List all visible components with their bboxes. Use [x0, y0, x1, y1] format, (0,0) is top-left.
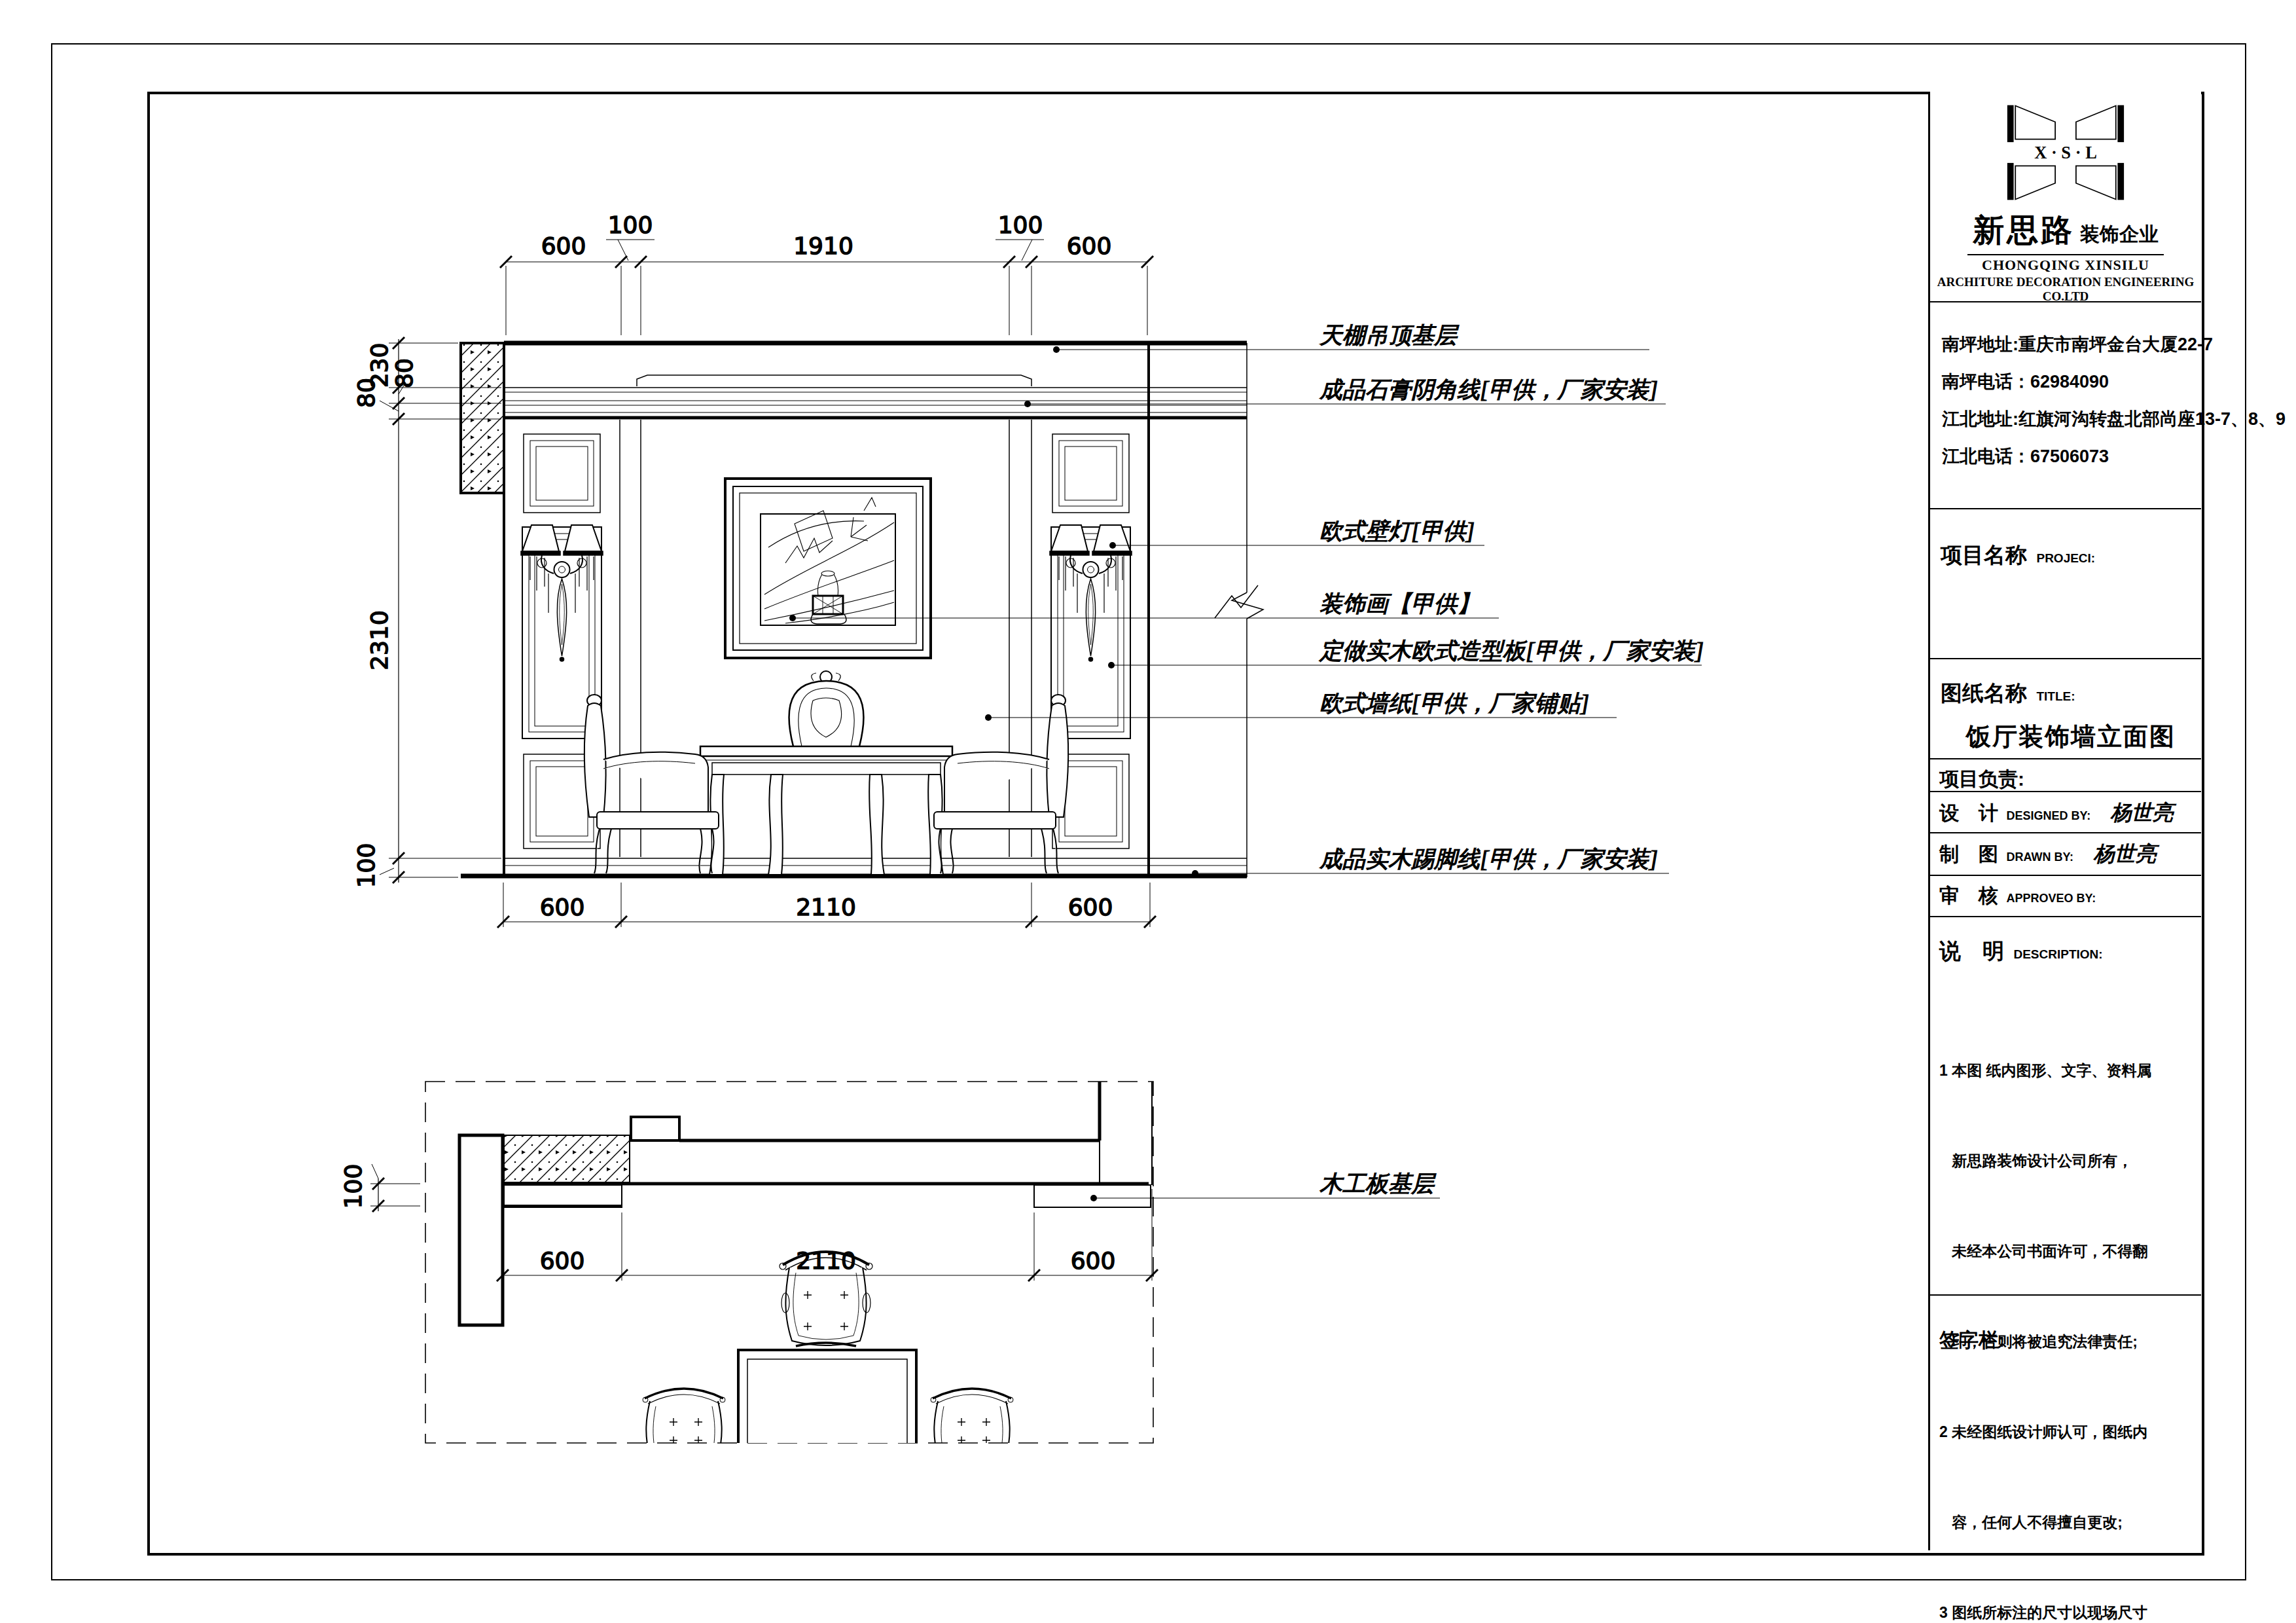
company-name: 新思路装饰企业 — [1930, 210, 2201, 251]
wall-structure — [461, 343, 1263, 877]
project-name-section: 项目名称 PROJECI: — [1930, 508, 2201, 658]
dim-label: 80 — [391, 358, 418, 388]
dim-label: 100 — [340, 1164, 367, 1209]
lead-label: 项目负责: — [1939, 768, 2024, 790]
dim-label: 2110 — [796, 894, 856, 921]
elevation-view: 600 100 1910 100 600 600 2110 600 — [353, 211, 1704, 928]
logo-initials: X · S · L — [2034, 143, 2097, 162]
annotation-wallpaper: 欧式墙纸[甲供，厂家铺贴] — [1319, 691, 1589, 716]
note-line: 1 本图 纸内图形、文字、资料属 — [1939, 1055, 2201, 1085]
audit-label-cn: 审 核 — [1939, 884, 1998, 906]
elevation-dim-bottom: 600 2110 600 — [497, 883, 1156, 928]
description-label-cn: 说 明 — [1939, 939, 2004, 963]
dim-label: 2310 — [366, 610, 393, 670]
drawing-sheet: 600 100 1910 100 600 600 2110 600 — [0, 0, 2296, 1623]
annotation-plaster-cornice: 成品石膏阴角线[甲供，厂家安装] — [1319, 377, 1658, 403]
drawing-label-cn: 图纸名称 — [1941, 681, 2027, 705]
plan-view: 600 2110 600 100 木工板基层 — [340, 1082, 1440, 1448]
dim-label: 1910 — [793, 232, 853, 259]
drawn-by-row: 制 图 DRAWN BY: 杨世亮 — [1930, 832, 2201, 875]
note-line: 新思路装饰设计公司所有， — [1939, 1146, 2201, 1176]
dim-label: 100 — [608, 211, 653, 238]
title-block: X · S · L 新思路装饰企业 CHONGQING XINSILU ARCH… — [1928, 92, 2201, 1550]
decorative-picture — [725, 479, 931, 658]
drawing-name-section: 图纸名称 TITLE: 饭厅装饰墙立面图 — [1930, 658, 2201, 758]
phone-jiangbei: 江北电话：67506073 — [1942, 438, 2201, 475]
company-logo-section: X · S · L 新思路装饰企业 CHONGQING XINSILU ARCH… — [1930, 92, 2201, 301]
company-type: 装饰企业 — [2080, 223, 2159, 245]
annotation-ceiling-base: 天棚吊顶基层 — [1319, 323, 1460, 348]
dim-label: 2110 — [796, 1247, 856, 1274]
plan-annotation: 木工板基层 — [1090, 1171, 1440, 1201]
dim-label: 80 — [353, 378, 380, 408]
phone-nanping: 南坪电话：62984090 — [1942, 363, 2201, 401]
dim-label: 600 — [540, 1247, 585, 1274]
company-name-en: CHONGQING XINSILU — [1930, 257, 2201, 274]
description-label-en: DESCRIPTION: — [2013, 947, 2102, 961]
logo-underline — [1967, 254, 2164, 255]
draft-label-en: DRAWN BY: — [2006, 850, 2073, 864]
annotation-wood-panel: 定做实木欧式造型板[甲供，厂家安装] — [1319, 638, 1704, 664]
design-label-cn: 设 计 — [1939, 802, 1998, 824]
address-nanping: 南坪地址:重庆市南坪金台大厦22-7 — [1942, 326, 2201, 363]
dining-set-elevation — [584, 671, 1068, 875]
project-label-cn: 项目名称 — [1941, 543, 2027, 567]
designer-name: 杨世亮 — [2111, 801, 2174, 824]
plan-furniture — [643, 1252, 1013, 1448]
dim-label: 600 — [1067, 232, 1112, 259]
elevation-dim-top: 600 100 1910 100 600 — [500, 211, 1153, 335]
wall-sconce-left — [521, 525, 603, 661]
address-jiangbei: 江北地址:红旗河沟转盘北部尚座13-7、8、9 — [1942, 401, 2201, 438]
audit-label-en: APPROVEO BY: — [2006, 892, 2096, 905]
dim-label: 600 — [540, 894, 585, 921]
dim-label: 100 — [353, 843, 380, 888]
dim-label: 600 — [541, 232, 586, 259]
project-label-en: PROJECI: — [2036, 551, 2095, 565]
designed-by-row: 设 计 DESIGNED BY: 杨世亮 — [1930, 791, 2201, 832]
draft-label-cn: 制 图 — [1939, 843, 1998, 865]
drawing-title: 饭厅装饰墙立面图 — [1941, 720, 2201, 754]
annotation-skirting: 成品实木踢脚线[甲供，厂家安装] — [1319, 847, 1658, 872]
signature-section: 签字栏: — [1930, 1294, 2201, 1550]
drafter-name: 杨世亮 — [2094, 842, 2157, 866]
description-section: 说 明 DESCRIPTION: 1 本图 纸内图形、文字、资料属 新思路装饰设… — [1930, 916, 2201, 1294]
xsl-logo-icon: X · S · L — [1987, 103, 2144, 202]
design-label-en: DESIGNED BY: — [2006, 809, 2090, 822]
annotation-plywood-base: 木工板基层 — [1319, 1171, 1437, 1197]
annotation-decor-painting: 装饰画【甲供】 — [1319, 591, 1480, 617]
dim-label: 600 — [1068, 894, 1113, 921]
signature-label: 签字栏: — [1939, 1329, 2005, 1351]
note-line: 3 图纸所标注的尺寸以现场尺寸 — [1939, 1597, 2201, 1623]
approved-by-row: 审 核 APPROVEO BY: — [1930, 875, 2201, 916]
company-name-cn: 新思路 — [1973, 213, 2075, 247]
company-name-en2: ARCHITURE DECORATION ENGINEERING CO.LTD — [1930, 275, 2201, 304]
dim-label: 100 — [998, 211, 1043, 238]
dim-label: 600 — [1071, 1247, 1116, 1274]
annotation-wall-lamp: 欧式壁灯[甲供] — [1319, 519, 1475, 544]
drawing-label-en: TITLE: — [2036, 689, 2075, 703]
company-contact-section: 南坪地址:重庆市南坪金台大厦22-7 南坪电话：62984090 江北地址:红旗… — [1930, 301, 2201, 508]
project-lead-row: 项目负责: — [1930, 758, 2201, 791]
note-line: 未经本公司书面许可，不得翻 — [1939, 1236, 2201, 1266]
